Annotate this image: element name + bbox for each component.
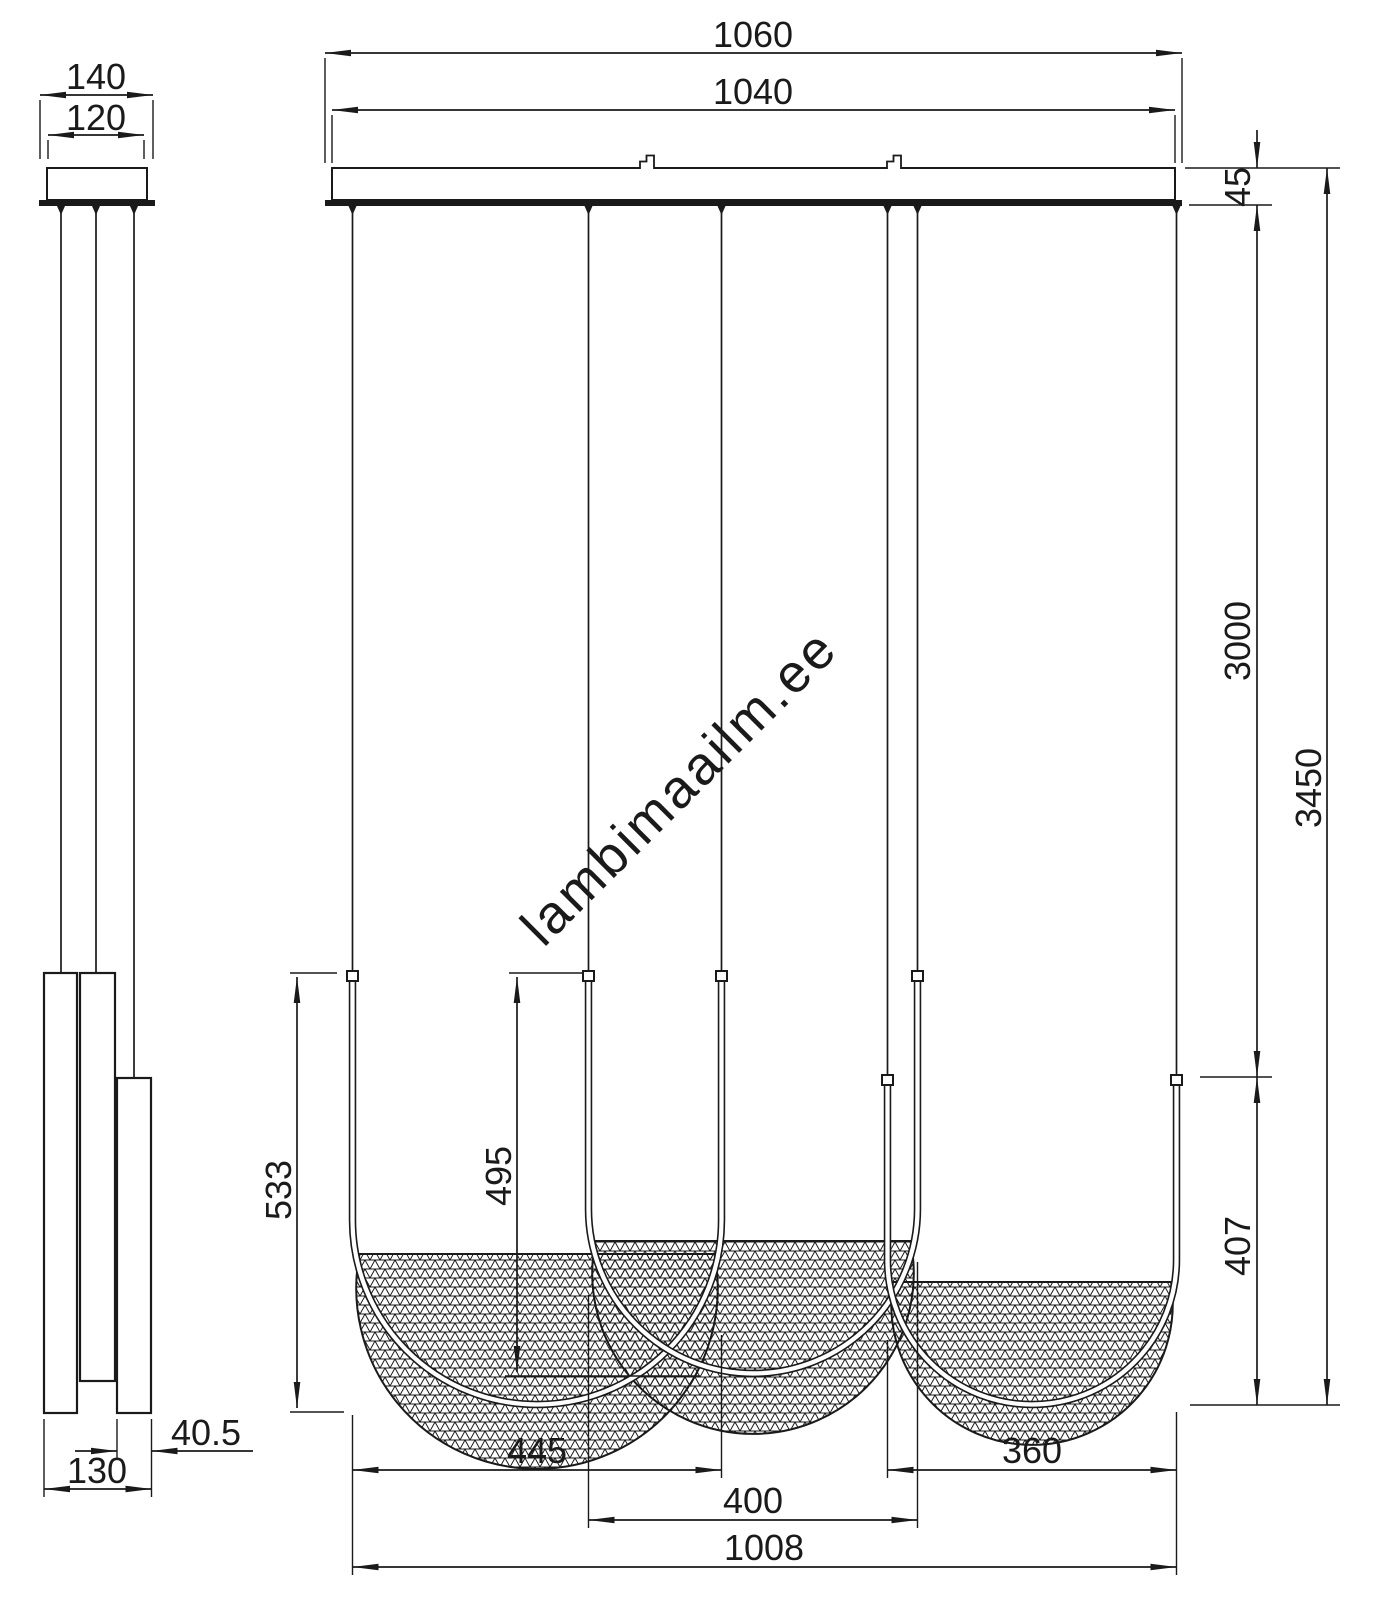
dim-label-360: 360 xyxy=(1002,1430,1062,1471)
front-suspension-cables xyxy=(353,206,1177,1075)
dim-label-445: 445 xyxy=(507,1430,567,1471)
dim-overall-width: 1008 xyxy=(353,1527,1177,1568)
cable-lock-clip-icon xyxy=(640,156,654,170)
dim-base-width: 130 xyxy=(44,1419,152,1497)
dim-label-40-5: 40.5 xyxy=(171,1412,241,1453)
ceiling-rail-body xyxy=(332,168,1175,200)
dim-pendant1-height: 533 xyxy=(258,973,344,1412)
dim-canopy-body-length: 1040 xyxy=(332,71,1175,163)
dim-pendant3-height: 407 xyxy=(1217,1077,1258,1405)
side-suspension-cables xyxy=(61,206,134,1078)
side-canopy-flange xyxy=(39,200,155,206)
front-view: 1060 1040 xyxy=(258,14,1340,1575)
dim-canopy-height: 45 xyxy=(1217,130,1258,207)
watermark-text: lambimaailm.ee xyxy=(510,618,850,958)
dim-label-1040: 1040 xyxy=(713,71,793,112)
dim-label-533: 533 xyxy=(258,1160,299,1220)
side-profile-bar-3 xyxy=(117,1078,151,1413)
dim-label-140: 140 xyxy=(66,56,126,97)
pendant-lamp-dimension-drawing: lambimaailm.ee 140 120 xyxy=(0,0,1387,1600)
side-profile-bar-1 xyxy=(44,973,77,1413)
dim-label-120: 120 xyxy=(66,97,126,138)
dim-label-3450: 3450 xyxy=(1288,748,1329,828)
technical-drawing-page: lambimaailm.ee 140 120 xyxy=(0,0,1387,1600)
dim-label-45: 45 xyxy=(1217,167,1258,207)
dim-label-130: 130 xyxy=(67,1450,127,1491)
right-dimension-stack: 45 3000 407 3450 xyxy=(1185,130,1340,1405)
cable-lock-clip-icon xyxy=(887,156,901,170)
dim-pendant3-width: 360 xyxy=(888,1430,1177,1471)
dim-pendant2-width: 400 xyxy=(589,1480,918,1521)
front-cable-grips xyxy=(349,206,1181,215)
dim-label-3000: 3000 xyxy=(1217,601,1258,681)
ceiling-rail-flange xyxy=(325,200,1182,206)
tube-top-caps xyxy=(347,971,1182,1085)
dim-label-495: 495 xyxy=(478,1146,519,1206)
side-profile-bar-2 xyxy=(80,973,115,1381)
side-view: 140 120 40.5 xyxy=(39,56,253,1497)
side-canopy-body xyxy=(47,168,147,200)
dim-total-height: 3450 xyxy=(1288,168,1329,1405)
side-cable-grips xyxy=(57,206,138,215)
dim-label-1008: 1008 xyxy=(724,1527,804,1568)
dim-canopy-body-width: 120 xyxy=(48,97,144,159)
cable-lock-clips xyxy=(640,156,901,170)
dim-pendant1-width: 445 xyxy=(353,1430,722,1471)
dim-suspension-length: 3000 xyxy=(1217,205,1258,1077)
dim-label-400: 400 xyxy=(723,1480,783,1521)
dim-label-1060: 1060 xyxy=(713,14,793,55)
dim-label-407: 407 xyxy=(1217,1216,1258,1276)
